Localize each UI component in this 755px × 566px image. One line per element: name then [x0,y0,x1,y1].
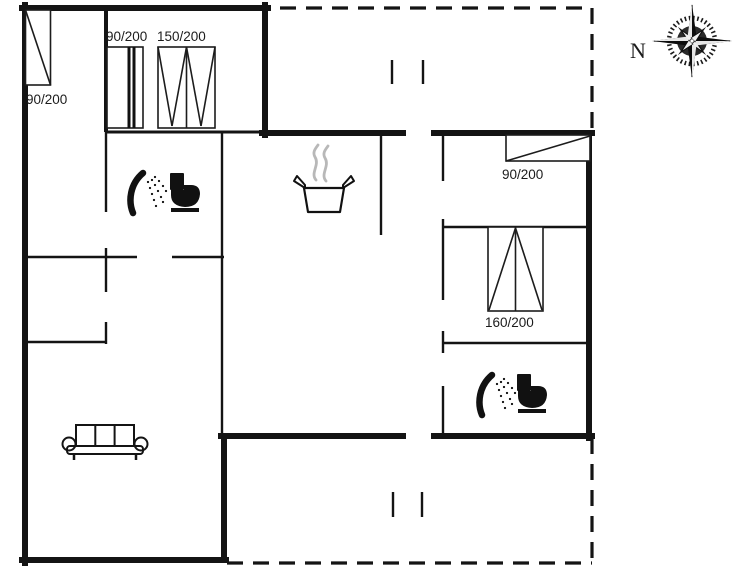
toilet-icon [170,173,200,212]
shower-icon [479,375,516,415]
sofa-icon [63,425,148,460]
window-top-150x200 [158,47,215,128]
shower-icon [130,173,167,213]
window-right-90x200 [506,135,590,161]
terrace-posts [392,60,423,517]
window-top-90x200 [107,47,143,128]
toilet-icon [517,374,547,413]
window-right-160x200 [488,227,543,311]
window-size-label: 90/200 [26,92,67,107]
floor-plan: 90/200 90/200 150/200 90/200 160/200 N [0,0,755,566]
north-label: N [630,38,646,63]
window-left-90x200 [26,10,51,85]
window-size-label: 150/200 [157,29,206,44]
compass: N [630,4,732,78]
cooking-pot-icon [294,145,354,212]
window-size-label: 90/200 [106,29,147,44]
compass-rose-icon [652,4,732,78]
window-size-label: 160/200 [485,315,534,330]
window-size-label: 90/200 [502,167,543,182]
